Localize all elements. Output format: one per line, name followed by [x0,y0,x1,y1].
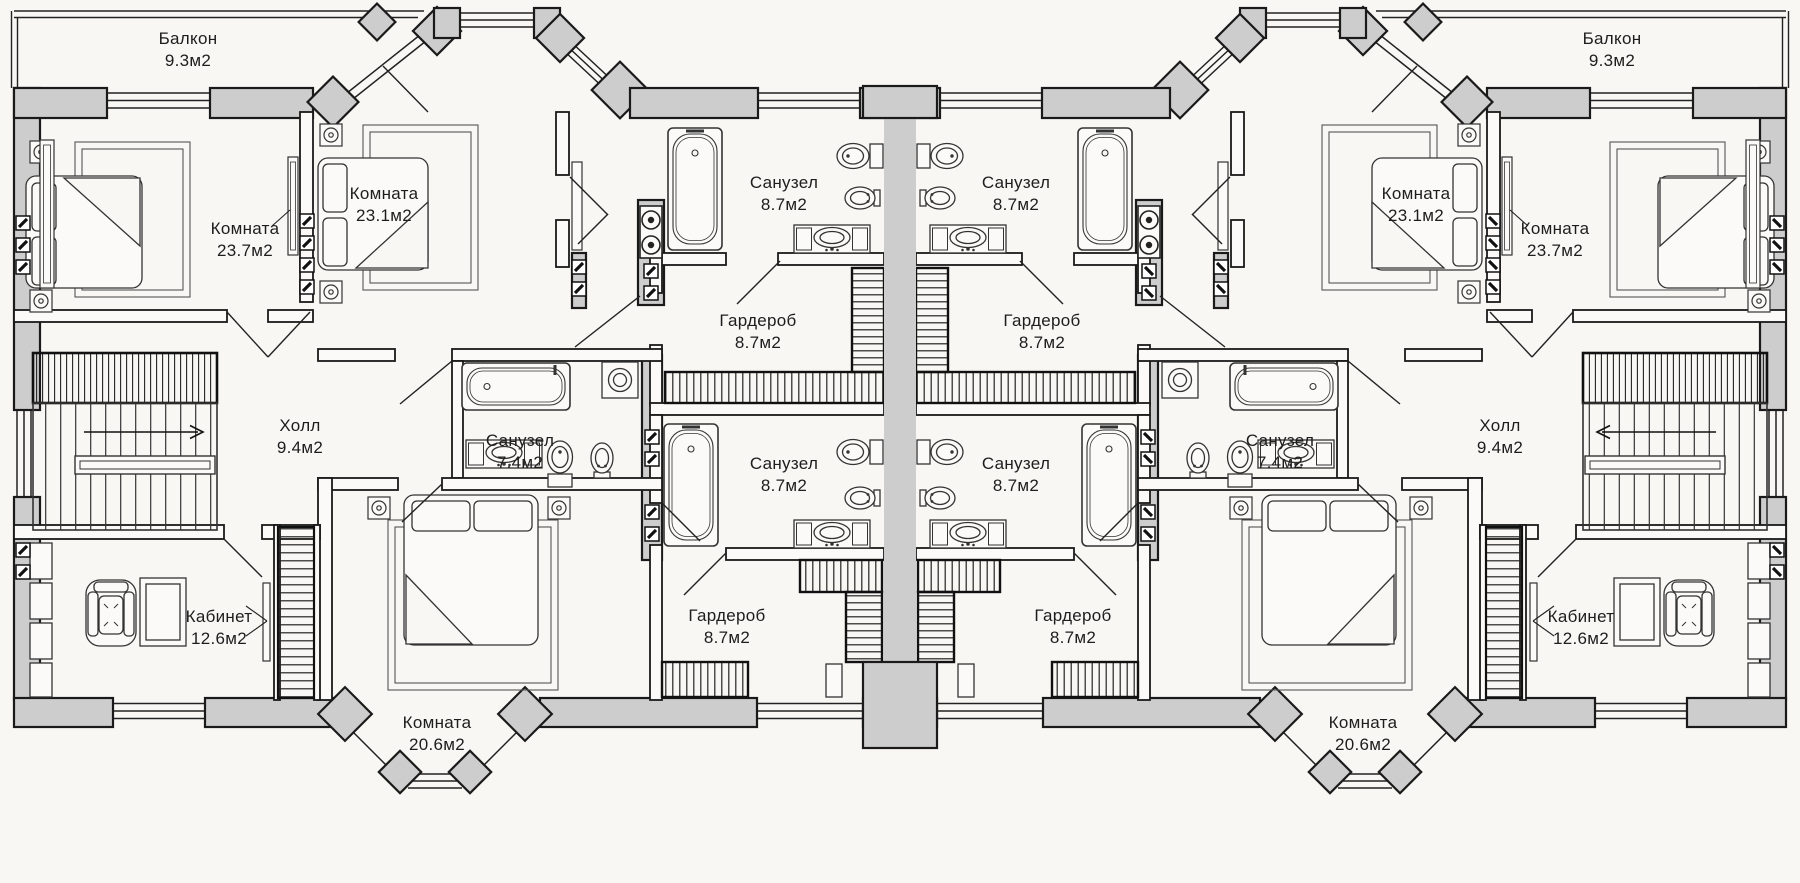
room-label-wardrobe-bottom-right: Гардероб8.7м2 [1034,605,1111,649]
room-label-office-left: Кабинет12.6м2 [186,606,253,650]
room-label-bathroom-74-right: Санузел7.4м2 [1246,430,1314,474]
room-label-balcony-left: Балкон9.3м2 [159,28,218,72]
room-label-hall-left: Холл9.4м2 [277,415,323,459]
unit-right-mirrored [916,4,1789,794]
room-label-bathroom-74-left: Санузел7.4м2 [486,430,554,474]
room-label-bathroom-mid-left: Санузел8.7м2 [750,453,818,497]
room-label-room-23-7-left: Комната23.7м2 [211,218,280,262]
room-label-wardrobe-top-left: Гардероб8.7м2 [719,310,796,354]
room-label-room-23-7-right: Комната23.7м2 [1521,218,1590,262]
room-label-room-23-1-left: Комната23.1м2 [350,183,419,227]
room-label-balcony-right: Балкон9.3м2 [1583,28,1642,72]
room-label-wardrobe-bottom-left: Гардероб8.7м2 [688,605,765,649]
unit-left [12,4,885,794]
room-label-room-23-1-right: Комната23.1м2 [1382,183,1451,227]
room-label-office-right: Кабинет12.6м2 [1548,606,1615,650]
room-label-room-20-6-left: Комната20.6м2 [403,712,472,756]
room-label-bathroom-top-left: Санузел8.7м2 [750,172,818,216]
room-label-bathroom-mid-right: Санузел8.7м2 [982,453,1050,497]
floor-plan-drawing [0,0,1800,883]
floor-plan-stage: Балкон9.3м2 Комната23.7м2 Комната23.1м2 … [0,0,1800,883]
room-label-wardrobe-top-right: Гардероб8.7м2 [1003,310,1080,354]
room-label-room-20-6-right: Комната20.6м2 [1329,712,1398,756]
room-label-hall-right: Холл9.4м2 [1477,415,1523,459]
room-label-bathroom-top-right: Санузел8.7м2 [982,172,1050,216]
